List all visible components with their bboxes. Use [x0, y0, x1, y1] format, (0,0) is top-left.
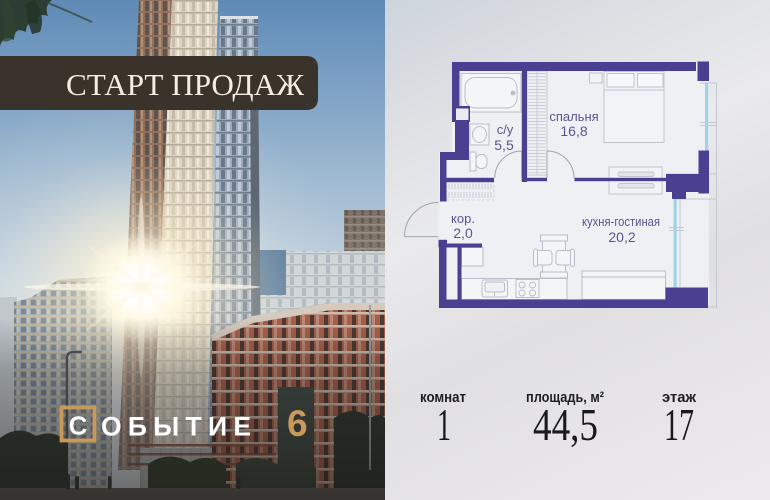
svg-text:С: С — [69, 411, 88, 441]
svg-text:5,5: 5,5 — [494, 137, 514, 153]
svg-text:кор.: кор. — [451, 211, 475, 226]
svg-text:20,2: 20,2 — [608, 229, 635, 245]
svg-text:17: 17 — [664, 399, 694, 450]
svg-text:спальня: спальня — [549, 109, 598, 124]
svg-text:1: 1 — [437, 399, 451, 450]
svg-text:с/у: с/у — [497, 122, 514, 137]
svg-text:16,8: 16,8 — [560, 123, 587, 139]
svg-text:44,5: 44,5 — [533, 399, 598, 450]
svg-text:6: 6 — [287, 403, 308, 444]
svg-text:кухня-гостиная: кухня-гостиная — [582, 214, 660, 229]
svg-text:2,0: 2,0 — [453, 225, 473, 241]
svg-text:СТАРТ ПРОДАЖ: СТАРТ ПРОДАЖ — [66, 67, 304, 102]
